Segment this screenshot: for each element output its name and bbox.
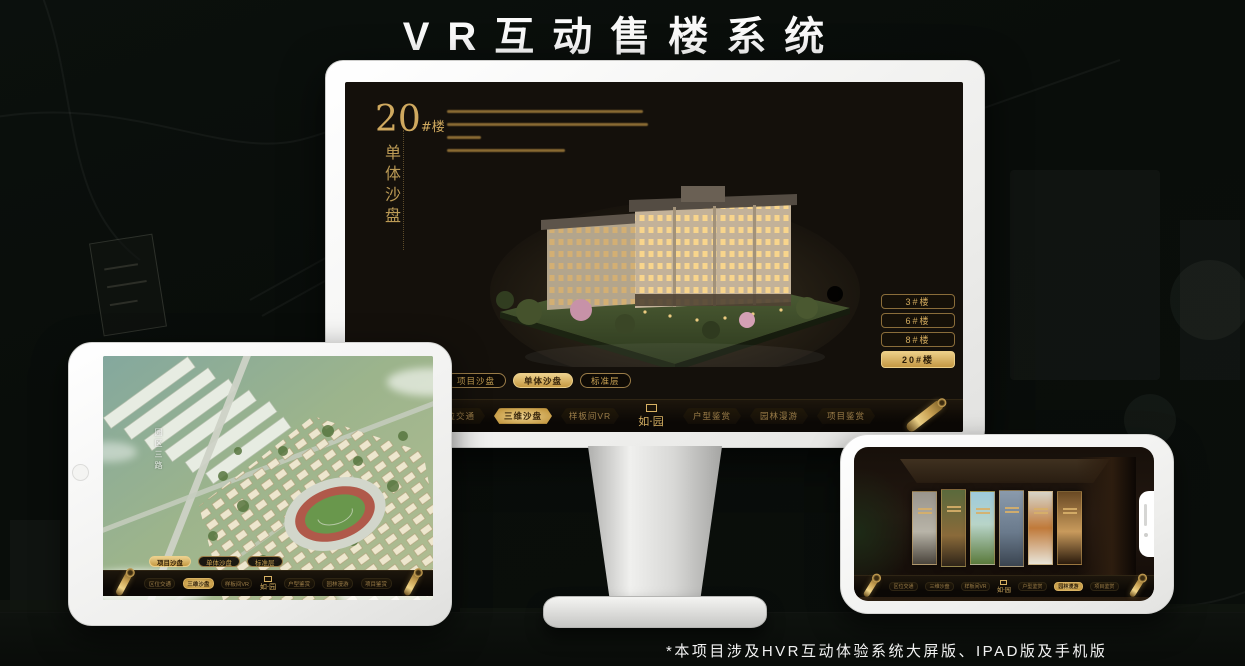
page-canvas: VR互动售楼系统 <box>0 0 1245 666</box>
floor-button-20[interactable]: 20#楼 <box>881 351 955 368</box>
scroll-menu-icon-right[interactable] <box>403 570 421 596</box>
hero-divider <box>403 130 404 250</box>
nav-item-3d-sandtable[interactable]: 三维沙盘 <box>925 582 954 591</box>
speaker-slit-icon <box>1144 504 1147 526</box>
gallery-card-building-facade[interactable] <box>999 490 1024 567</box>
gallery-card-exterior-lawn[interactable] <box>970 491 995 565</box>
nav-item-3d-sandtable[interactable]: 三维沙盘 <box>494 408 552 425</box>
scene-gallery <box>912 491 1082 567</box>
nav-item-unit-gallery[interactable]: 户型鉴赏 <box>683 408 741 425</box>
nav-item-showroom-vr[interactable]: 样板间VR <box>221 578 252 589</box>
hero-block: 20#楼 单体沙盘 <box>375 102 445 228</box>
tab-single-sandtable[interactable]: 单体沙盘 <box>513 373 573 388</box>
road-label: 园区三路 <box>153 428 164 472</box>
scroll-menu-icon-left[interactable] <box>863 576 880 598</box>
phone-nav-bar: 区位交通 三维沙盘 样板间VR 如·园 户型鉴赏 园林漫游 项目鉴赏 <box>854 575 1154 597</box>
gallery-card-autumn-garden[interactable] <box>1028 491 1053 565</box>
tab-standard-floor[interactable]: 标准层 <box>580 373 631 388</box>
tablet-tab-bar: 项目沙盘 单体沙盘 标准层 <box>149 556 283 567</box>
phone-screen: 区位交通 三维沙盘 样板间VR 如·园 户型鉴赏 园林漫游 项目鉴赏 <box>854 447 1154 601</box>
gallery-card-interior-gray[interactable] <box>912 491 937 565</box>
building-render <box>485 152 865 367</box>
tab-standard-floor[interactable]: 标准层 <box>247 556 283 567</box>
nav-item-unit-gallery[interactable]: 户型鉴赏 <box>1018 582 1047 591</box>
gallery-card-courtyard[interactable] <box>941 489 966 567</box>
nav-item-garden-roam[interactable]: 园林漫游 <box>750 408 808 425</box>
page-title: VR互动售楼系统 <box>0 4 1245 62</box>
brand-logo: 如·园 <box>997 580 1011 594</box>
nav-item-showroom-vr[interactable]: 样板间VR <box>961 582 990 591</box>
hero-number: 20#楼 <box>375 102 445 138</box>
description-line <box>447 123 648 126</box>
nav-item-unit-gallery[interactable]: 户型鉴赏 <box>284 578 315 589</box>
monitor-tab-bar: 项目沙盘 单体沙盘 标准层 <box>446 373 631 388</box>
tab-project-sandtable[interactable]: 项目沙盘 <box>149 556 191 567</box>
tablet-nav-bar: 区位交通 三维沙盘 样板间VR 如·园 户型鉴赏 园林漫游 项目鉴赏 <box>103 570 433 596</box>
nav-item-project-gallery[interactable]: 项目鉴赏 <box>1090 582 1119 591</box>
floor-selector: 3#楼 6#楼 8#楼 20#楼 <box>881 294 955 368</box>
floor-button-6[interactable]: 6#楼 <box>881 313 955 328</box>
nav-item-3d-sandtable[interactable]: 三维沙盘 <box>183 578 214 589</box>
nav-item-garden-roam[interactable]: 园林漫游 <box>1054 582 1083 591</box>
nav-item-project-gallery[interactable]: 项目鉴赏 <box>361 578 392 589</box>
camera-dot-icon <box>1144 533 1148 537</box>
nav-item-project-gallery[interactable]: 项目鉴赏 <box>817 408 875 425</box>
footnote: *本项目涉及HVR互动体验系统大屏版、IPAD版及手机版 <box>666 640 1107 661</box>
brand-seal-icon <box>646 404 657 412</box>
tab-single-sandtable[interactable]: 单体沙盘 <box>198 556 240 567</box>
phone-notch <box>1139 491 1154 557</box>
brand-logo: 如·园 <box>628 404 674 429</box>
nav-item-location-traffic[interactable]: 区位交通 <box>144 578 175 589</box>
scroll-menu-icon[interactable] <box>905 399 946 432</box>
description-line <box>447 110 643 113</box>
description-line <box>447 136 481 139</box>
floor-button-8[interactable]: 8#楼 <box>881 332 955 347</box>
monitor-stand-base <box>543 596 767 628</box>
hero-subtitle: 单体沙盘 <box>379 144 403 228</box>
tab-project-sandtable[interactable]: 项目沙盘 <box>446 373 506 388</box>
gallery-card-wood-cabinet[interactable] <box>1057 491 1082 565</box>
floor-button-3[interactable]: 3#楼 <box>881 294 955 309</box>
tablet-screen: 园区三路 项目沙盘 单体沙盘 标准层 区位交通 三维沙盘 样板间VR 如·园 户… <box>103 356 433 600</box>
scroll-menu-icon-right[interactable] <box>1129 576 1146 598</box>
tablet-home-button[interactable] <box>72 464 89 481</box>
nav-item-showroom-vr[interactable]: 样板间VR <box>561 408 619 425</box>
brand-logo: 如·园 <box>260 576 276 592</box>
description-line <box>447 149 565 152</box>
description-text <box>447 110 648 162</box>
scroll-menu-icon-left[interactable] <box>115 570 133 596</box>
nav-item-location-traffic[interactable]: 区位交通 <box>889 582 918 591</box>
nav-item-garden-roam[interactable]: 园林漫游 <box>322 578 353 589</box>
